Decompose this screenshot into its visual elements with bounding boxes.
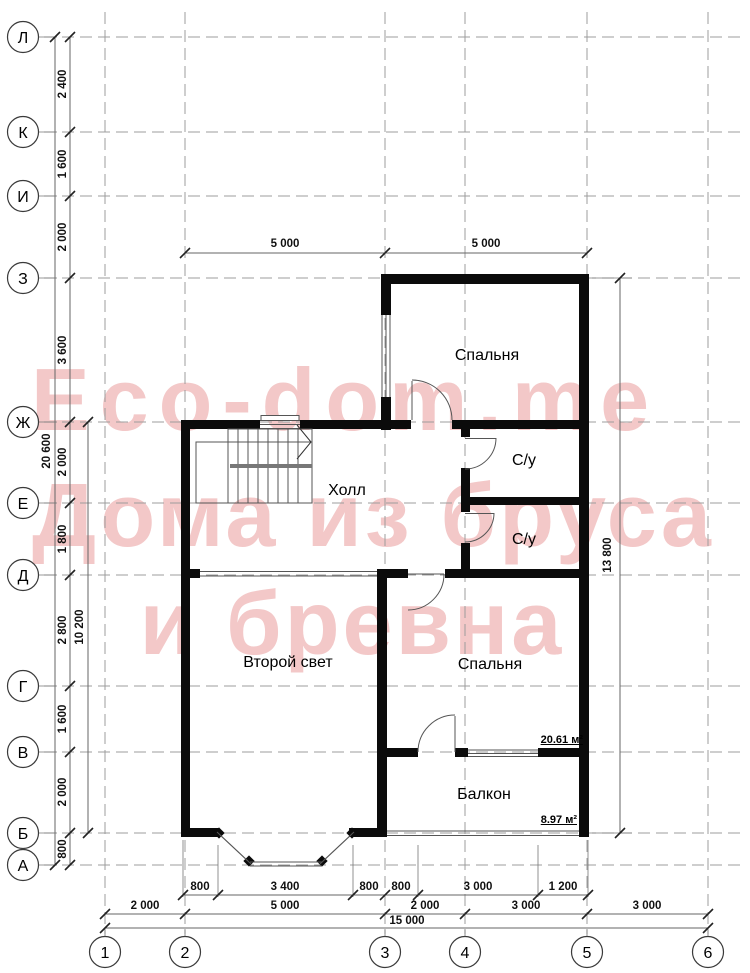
dim-bottom2-3: 3 000 (512, 900, 541, 912)
dim-bottom1-3: 800 (391, 881, 410, 893)
dim-bottom2-0: 2 000 (131, 900, 160, 912)
axis-row-e: Е (18, 496, 29, 513)
window-hall-sill (261, 416, 299, 421)
doors (408, 380, 496, 752)
dim-left-2: 2 000 (57, 223, 69, 252)
axis-row-a: А (18, 858, 29, 875)
room-label-bedroom-top: Спальня (455, 347, 519, 365)
wall-left (181, 420, 190, 837)
dim-left-0: 2 400 (57, 70, 69, 99)
axis-row-b: Б (18, 826, 29, 843)
grid-lines (44, 12, 746, 934)
axis-row-l: Л (18, 30, 29, 47)
dim-left-6: 2 800 (57, 616, 69, 645)
axis-row-zh: Ж (16, 415, 31, 432)
wall-v-3 (538, 748, 579, 757)
door-bathroom-bottom (465, 513, 494, 542)
area-label-bedroom-bottom: 20.61 м² (541, 734, 583, 746)
axis-row-i: И (17, 189, 29, 206)
door-bedroom-bottom (408, 574, 444, 610)
stair-handrail (230, 464, 312, 468)
dim-left-3: 3 600 (57, 336, 69, 365)
bay-window-left (217, 832, 251, 864)
wall-top (381, 274, 589, 284)
axis-row-d: Д (18, 568, 29, 585)
room-label-hall: Холл (328, 482, 366, 500)
dim-left-span: 10 200 (74, 609, 86, 644)
room-label-bedroom-bottom: Спальня (458, 656, 522, 674)
room-label-bathroom-top: С/у (512, 452, 536, 470)
stairs (196, 425, 312, 503)
room-label-second-light: Второй свет (243, 654, 332, 672)
wall-wc-pier-2 (461, 505, 470, 512)
axis-col-4: 4 (461, 945, 470, 962)
dim-left-7: 1 600 (57, 705, 69, 734)
door-balcony (418, 715, 455, 752)
dim-bottom1-1: 3 400 (271, 881, 300, 893)
axis-col-6: 6 (704, 945, 713, 962)
room-label-balcony: Балкон (457, 786, 511, 804)
dim-bottom2-1: 5 000 (271, 900, 300, 912)
wall-zh-3 (452, 420, 579, 429)
axis-row-z: З (18, 271, 28, 288)
dim-left-8: 2 000 (57, 778, 69, 807)
dim-left-4: 2 000 (57, 448, 69, 477)
axis-col-2: 2 (181, 945, 190, 962)
wall-v-1 (377, 748, 418, 757)
axis-col-5: 5 (583, 945, 592, 962)
dim-left-1: 1 600 (57, 150, 69, 179)
dim-right: 13 800 (602, 537, 614, 572)
bay-window-right (320, 832, 354, 864)
dim-bottom1-4: 3 000 (464, 881, 493, 893)
wall-wc-low (461, 543, 470, 569)
dim-left-9: 800 (57, 839, 69, 858)
room-label-bathroom-bottom: С/у (512, 531, 536, 549)
door-bedroom-top (412, 380, 452, 420)
extension-lines (38, 37, 708, 936)
stair-landing (196, 442, 312, 503)
door-bathroom-top (465, 438, 496, 469)
dim-bottom-overall: 15 000 (389, 915, 424, 927)
axis-row-k: К (18, 125, 28, 142)
dim-bottom1-5: 1 200 (549, 881, 578, 893)
wall-zh-1 (181, 420, 260, 429)
dim-top-1: 5 000 (472, 238, 501, 250)
wall-partition (377, 569, 387, 837)
wall-bedroom-left-upper (381, 274, 391, 315)
axis-col-3: 3 (381, 945, 390, 962)
wall-wc-pier-1 (461, 429, 470, 437)
dim-bottom2-2: 2 000 (411, 900, 440, 912)
dim-bottom2-4: 3 000 (633, 900, 662, 912)
axis-col-1: 1 (101, 945, 110, 962)
axis-row-g: Г (19, 679, 28, 696)
dim-bottom1-0: 800 (190, 881, 209, 893)
wall-v-2 (455, 748, 468, 757)
wall-wc-divider (461, 497, 579, 505)
wall-d-3 (445, 569, 579, 578)
wall-b-1 (181, 828, 219, 837)
floor-plan-page: Eco-dom.me Дома из бруса и бревна (0, 0, 750, 973)
dim-bottom1-2: 800 (359, 881, 378, 893)
dim-left-5: 1 800 (57, 525, 69, 554)
wall-right (579, 274, 589, 837)
dim-top-0: 5 000 (271, 238, 300, 250)
area-label-balcony: 8.97 м² (541, 814, 577, 826)
wall-zh-2 (300, 420, 411, 429)
wall-d-1 (181, 569, 200, 578)
window-balcony-wall (468, 750, 538, 757)
wall-wc-mid (461, 468, 470, 497)
window-bedroom-top (382, 315, 390, 397)
dim-left-overall: 20 600 (41, 433, 53, 468)
axis-row-v: В (18, 745, 29, 762)
floor-plan-drawing: 20 600 10 200 2 400 1 600 2 000 3 600 2 … (0, 0, 750, 973)
